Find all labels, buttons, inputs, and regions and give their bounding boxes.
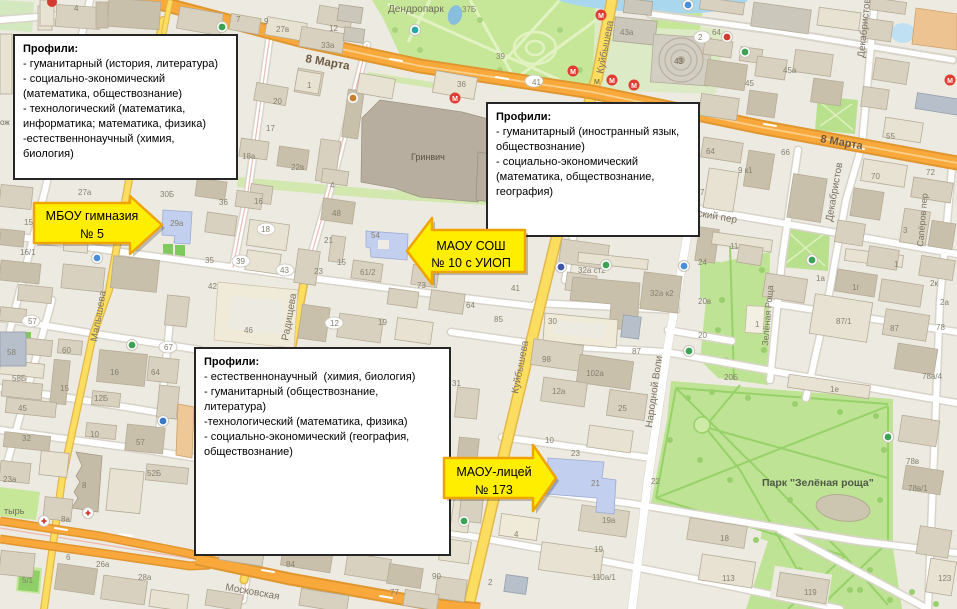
svg-text:7: 7 bbox=[700, 188, 705, 197]
svg-text:72: 72 bbox=[926, 168, 935, 177]
svg-text:52Б: 52Б bbox=[147, 469, 161, 478]
svg-text:18: 18 bbox=[720, 534, 729, 543]
svg-text:42: 42 bbox=[208, 282, 217, 291]
svg-text:23: 23 bbox=[571, 449, 580, 458]
svg-text:39: 39 bbox=[236, 257, 245, 266]
svg-text:19: 19 bbox=[594, 545, 603, 554]
svg-text:М: М bbox=[631, 83, 637, 90]
svg-text:7: 7 bbox=[236, 15, 241, 24]
svg-text:77: 77 bbox=[390, 588, 399, 597]
svg-text:29а: 29а bbox=[170, 219, 184, 228]
svg-text:6: 6 bbox=[66, 553, 71, 562]
svg-text:5/1: 5/1 bbox=[22, 576, 34, 585]
svg-text:10: 10 bbox=[90, 430, 99, 439]
svg-text:98: 98 bbox=[542, 355, 551, 364]
svg-text:36: 36 bbox=[219, 198, 228, 207]
svg-text:58Б: 58Б bbox=[12, 374, 26, 383]
svg-text:20: 20 bbox=[698, 331, 707, 340]
svg-text:20в: 20в bbox=[698, 297, 711, 306]
svg-text:23: 23 bbox=[314, 267, 323, 276]
svg-text:11: 11 bbox=[730, 242, 739, 251]
svg-text:90: 90 bbox=[432, 572, 441, 581]
svg-text:32а к2: 32а к2 bbox=[650, 289, 674, 298]
svg-text:87: 87 bbox=[632, 347, 641, 356]
svg-text:37Б: 37Б bbox=[462, 5, 476, 14]
svg-text:15/2: 15/2 bbox=[24, 218, 40, 227]
svg-text:Гринвич: Гринвич bbox=[411, 152, 445, 162]
svg-text:45: 45 bbox=[745, 79, 754, 88]
svg-text:67: 67 bbox=[164, 343, 173, 352]
svg-text:М: М bbox=[947, 78, 953, 85]
svg-text:54: 54 bbox=[371, 231, 380, 240]
svg-text:Парк "Зелёная роща": Парк "Зелёная роща" bbox=[762, 477, 874, 489]
svg-text:15: 15 bbox=[60, 384, 69, 393]
svg-text:31: 31 bbox=[452, 379, 461, 388]
svg-text:123: 123 bbox=[938, 574, 952, 583]
svg-text:60: 60 bbox=[62, 346, 71, 355]
svg-text:85: 85 bbox=[494, 315, 503, 324]
svg-text:М: М bbox=[570, 69, 576, 76]
svg-text:18а: 18а bbox=[242, 152, 256, 161]
svg-text:22в: 22в bbox=[291, 163, 304, 172]
svg-text:78в: 78в bbox=[906, 457, 919, 466]
svg-text:М: М bbox=[452, 96, 458, 103]
svg-text:8: 8 bbox=[82, 481, 87, 490]
svg-text:М: М bbox=[609, 78, 615, 85]
svg-text:57: 57 bbox=[28, 317, 37, 326]
svg-text:84: 84 bbox=[286, 560, 295, 569]
svg-text:26а: 26а bbox=[96, 560, 110, 569]
svg-text:48: 48 bbox=[332, 209, 341, 218]
svg-text:16/1: 16/1 bbox=[20, 248, 36, 257]
svg-text:45а: 45а bbox=[783, 66, 797, 75]
svg-text:70: 70 bbox=[871, 172, 880, 181]
svg-text:43: 43 bbox=[280, 266, 289, 275]
svg-text:119: 119 bbox=[804, 588, 817, 597]
svg-text:66: 66 bbox=[781, 148, 790, 157]
svg-text:2: 2 bbox=[698, 33, 703, 42]
svg-text:32: 32 bbox=[22, 434, 31, 443]
svg-text:10: 10 bbox=[545, 436, 554, 445]
svg-text:64: 64 bbox=[466, 301, 475, 310]
svg-text:19а: 19а bbox=[602, 516, 616, 525]
svg-text:24: 24 bbox=[698, 258, 707, 267]
svg-text:20: 20 bbox=[273, 97, 282, 106]
svg-text:22: 22 bbox=[651, 477, 660, 486]
svg-text:Дендропарк: Дендропарк bbox=[388, 4, 444, 15]
svg-text:35: 35 bbox=[205, 256, 214, 265]
svg-text:17: 17 bbox=[266, 124, 275, 133]
svg-text:19: 19 bbox=[378, 318, 387, 327]
svg-text:78а/4: 78а/4 bbox=[922, 372, 943, 381]
svg-text:33а: 33а bbox=[321, 41, 335, 50]
svg-text:30: 30 bbox=[548, 317, 557, 326]
svg-text:58: 58 bbox=[7, 348, 16, 357]
svg-text:20Б: 20Б bbox=[724, 373, 738, 382]
svg-text:9: 9 bbox=[264, 17, 269, 26]
svg-text:41: 41 bbox=[532, 78, 541, 87]
svg-text:25: 25 bbox=[618, 404, 627, 413]
svg-text:1: 1 bbox=[755, 320, 760, 329]
svg-text:4: 4 bbox=[330, 181, 335, 190]
svg-text:1: 1 bbox=[307, 81, 312, 90]
svg-text:8а: 8а bbox=[61, 515, 70, 524]
svg-text:39: 39 bbox=[496, 52, 505, 61]
svg-text:64: 64 bbox=[151, 368, 160, 377]
svg-text:4: 4 bbox=[514, 530, 519, 539]
svg-text:45: 45 bbox=[18, 404, 27, 413]
svg-text:2а: 2а bbox=[940, 298, 949, 307]
svg-text:1: 1 bbox=[894, 260, 899, 269]
svg-text:87: 87 bbox=[890, 324, 899, 333]
svg-text:30Б: 30Б bbox=[160, 190, 174, 199]
svg-text:110а/1: 110а/1 bbox=[592, 573, 616, 582]
svg-text:16: 16 bbox=[254, 197, 263, 206]
svg-text:тырь: тырь bbox=[4, 506, 25, 516]
svg-text:1а: 1а bbox=[816, 274, 825, 283]
svg-text:9 к1: 9 к1 bbox=[738, 166, 753, 175]
svg-text:55: 55 bbox=[886, 132, 895, 141]
svg-text:73: 73 bbox=[417, 281, 426, 290]
svg-text:1г: 1г bbox=[852, 283, 859, 292]
svg-text:78: 78 bbox=[936, 323, 945, 332]
svg-text:46: 46 bbox=[244, 326, 253, 335]
svg-text:27в: 27в bbox=[276, 25, 289, 34]
svg-text:М: М bbox=[594, 79, 600, 86]
svg-text:12а: 12а bbox=[552, 387, 566, 396]
svg-text:21: 21 bbox=[324, 236, 333, 245]
svg-text:18: 18 bbox=[261, 225, 270, 234]
svg-text:ож: ож bbox=[0, 118, 10, 127]
svg-text:1е: 1е bbox=[830, 385, 839, 394]
svg-text:64: 64 bbox=[712, 28, 721, 37]
svg-text:4: 4 bbox=[74, 4, 79, 13]
svg-text:41: 41 bbox=[511, 284, 520, 293]
svg-text:15: 15 bbox=[337, 258, 346, 267]
svg-text:64: 64 bbox=[706, 147, 715, 156]
svg-text:43а: 43а bbox=[620, 28, 634, 37]
svg-text:23а: 23а bbox=[3, 475, 17, 484]
svg-text:36: 36 bbox=[457, 80, 466, 89]
svg-text:12: 12 bbox=[329, 24, 338, 33]
svg-text:М: М bbox=[598, 13, 604, 20]
svg-text:43: 43 bbox=[674, 57, 683, 66]
svg-text:12: 12 bbox=[330, 319, 339, 328]
svg-text:16: 16 bbox=[110, 368, 119, 377]
svg-text:3: 3 bbox=[903, 226, 908, 235]
svg-text:2к: 2к bbox=[930, 279, 938, 288]
svg-text:12Б: 12Б bbox=[94, 394, 108, 403]
svg-text:61/2: 61/2 bbox=[360, 268, 376, 277]
svg-text:113: 113 bbox=[722, 574, 735, 583]
svg-text:28а: 28а bbox=[138, 573, 152, 582]
svg-text:27а: 27а bbox=[78, 188, 92, 197]
svg-text:78в/1: 78в/1 bbox=[908, 484, 928, 493]
svg-text:21: 21 bbox=[591, 479, 600, 488]
svg-text:2: 2 bbox=[488, 578, 493, 587]
svg-text:57: 57 bbox=[136, 438, 145, 447]
svg-text:102а: 102а bbox=[586, 369, 604, 378]
svg-text:87/1: 87/1 bbox=[836, 317, 852, 326]
